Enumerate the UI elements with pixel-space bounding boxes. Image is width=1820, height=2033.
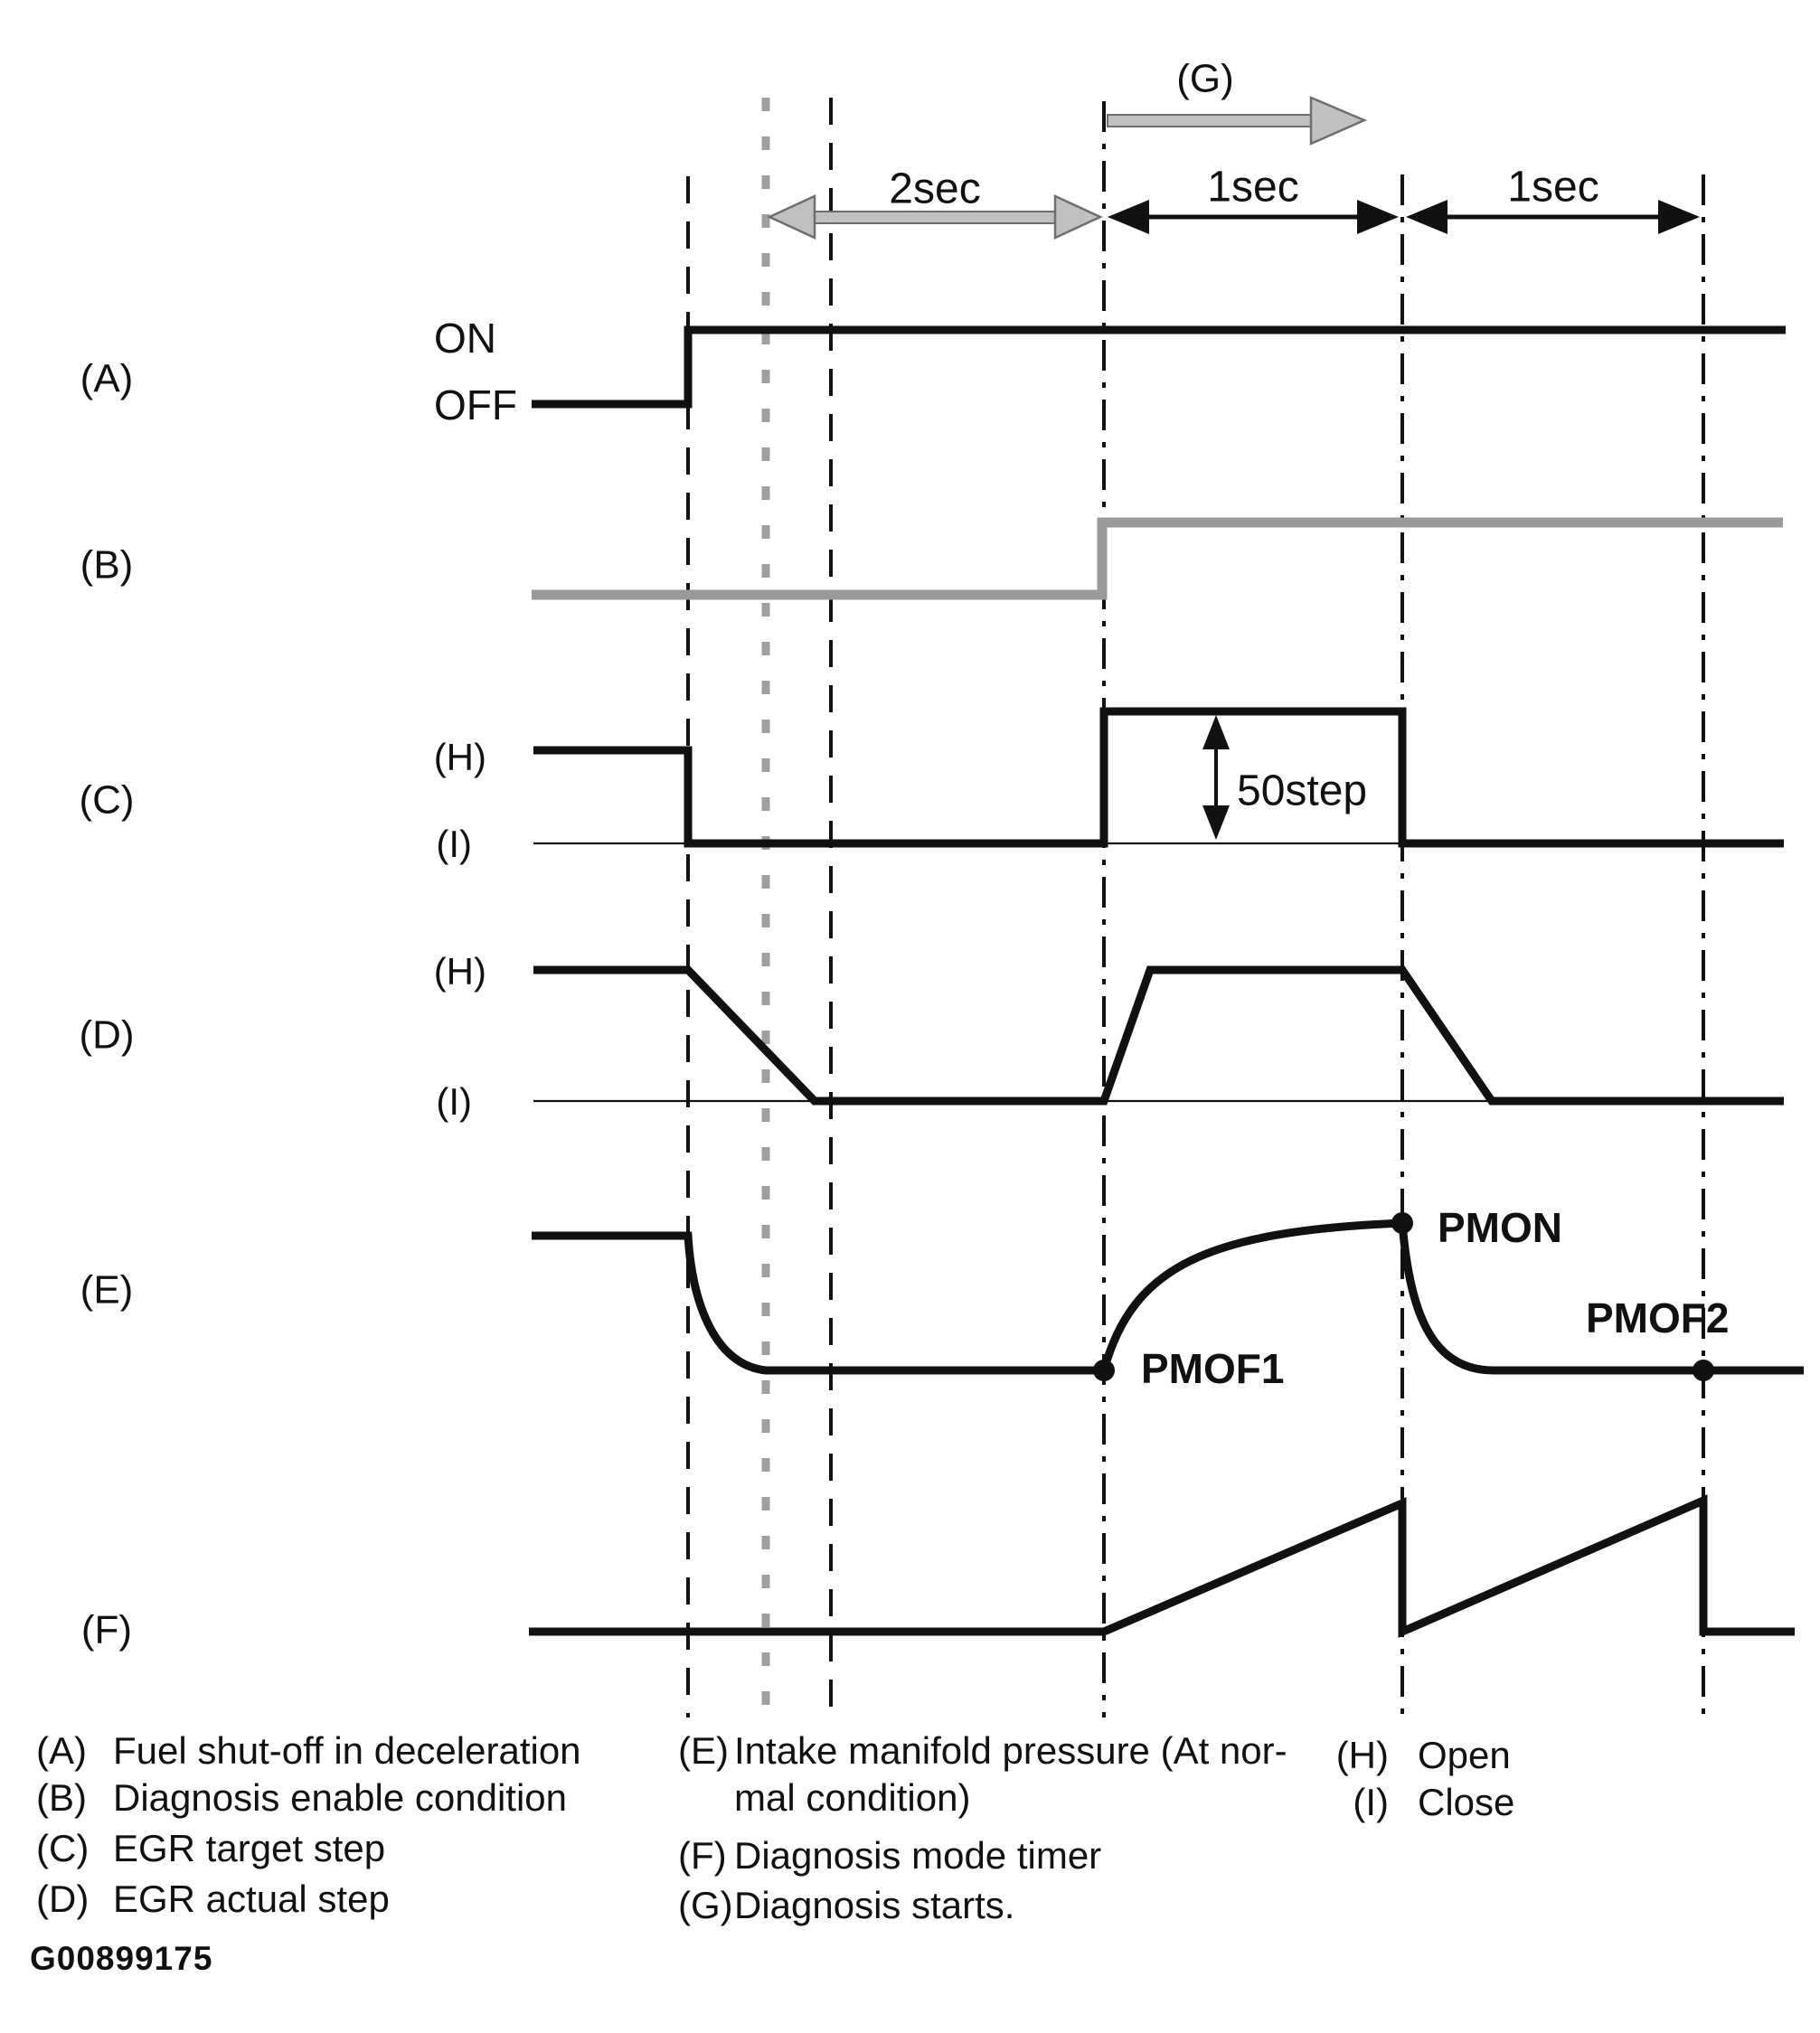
g-arrow-label: (G) bbox=[1176, 57, 1234, 101]
point-pmof1 bbox=[1093, 1360, 1115, 1381]
legend-key-c: (C) bbox=[36, 1825, 89, 1872]
legend-key-b: (B) bbox=[36, 1774, 87, 1821]
legend-key-a: (A) bbox=[36, 1727, 87, 1774]
label-on: ON bbox=[434, 315, 496, 362]
interval-arrow-1sec-first-right-head bbox=[1357, 200, 1399, 234]
level-label-c-low: (I) bbox=[436, 823, 472, 865]
label-50step: 50step bbox=[1237, 767, 1367, 815]
diagnosis-start-arrow-shaft bbox=[1108, 115, 1314, 127]
interval-arrow-1sec-first-left-head bbox=[1108, 200, 1149, 234]
diagnosis-start-arrow-head bbox=[1311, 98, 1364, 144]
waveform-diagnosis-timer bbox=[529, 1501, 1795, 1632]
legend-text-e: Intake manifold pressure (At nor- bbox=[734, 1727, 1287, 1774]
point-pmof2 bbox=[1693, 1360, 1714, 1381]
egr-diagnosis-timing-diagram: (G) 2sec 1sec 1sec (A) (B) (C) (D) (E) (… bbox=[0, 0, 1820, 2033]
row-label-d: (D) bbox=[79, 1013, 134, 1058]
step-height-arrow-bottom-head bbox=[1202, 805, 1230, 840]
label-pmof2: PMOF2 bbox=[1586, 1294, 1729, 1341]
interval-arrow-1sec-second-left-head bbox=[1406, 200, 1448, 234]
interval-arrow-2sec-right-head bbox=[1055, 196, 1100, 238]
row-label-b: (B) bbox=[80, 543, 134, 588]
point-pmon bbox=[1391, 1212, 1413, 1234]
legend-key-f: (F) bbox=[678, 1832, 727, 1879]
legend-key-e: (E) bbox=[678, 1727, 729, 1774]
row-label-a: (A) bbox=[80, 357, 134, 401]
legend-text-h: Open bbox=[1418, 1732, 1511, 1779]
waveform-diagnosis-enable bbox=[532, 522, 1783, 595]
waveform-egr-target-step bbox=[533, 711, 1784, 843]
legend-text-a: Fuel shut-off in deceleration bbox=[113, 1727, 581, 1774]
legend-key-h: (H) bbox=[1311, 1732, 1389, 1779]
legend-text-i: Close bbox=[1418, 1779, 1514, 1826]
interval-label-1sec-second: 1sec bbox=[1507, 164, 1598, 212]
interval-arrow-2sec-shaft bbox=[810, 212, 1060, 223]
legend-text-c: EGR target step bbox=[113, 1825, 385, 1872]
interval-label-1sec-first: 1sec bbox=[1207, 164, 1298, 212]
label-off: OFF bbox=[434, 381, 517, 428]
legend-text-d: EGR actual step bbox=[113, 1876, 390, 1923]
legend-key-i: (I) bbox=[1311, 1779, 1389, 1826]
interval-arrow-1sec-second-right-head bbox=[1658, 200, 1700, 234]
label-pmon: PMON bbox=[1438, 1204, 1562, 1251]
legend-key-d: (D) bbox=[36, 1876, 89, 1923]
diagnosis-start-arrow bbox=[1108, 98, 1364, 144]
legend-text-e2: mal condition) bbox=[734, 1774, 970, 1821]
label-pmof1: PMOF1 bbox=[1141, 1345, 1284, 1392]
interval-label-2sec: 2sec bbox=[889, 165, 980, 213]
row-label-e: (E) bbox=[80, 1268, 134, 1313]
row-label-f: (F) bbox=[81, 1608, 132, 1652]
figure-id: G00899175 bbox=[30, 1940, 212, 1978]
waveform-egr-actual-step bbox=[533, 970, 1784, 1101]
legend-text-f: Diagnosis mode timer bbox=[734, 1832, 1101, 1879]
legend-key-g: (G) bbox=[678, 1882, 733, 1929]
level-label-d-high: (H) bbox=[434, 950, 486, 993]
legend-text-g: Diagnosis starts. bbox=[734, 1882, 1014, 1929]
level-label-d-low: (I) bbox=[436, 1080, 472, 1123]
legend-text-b: Diagnosis enable condition bbox=[113, 1774, 567, 1821]
interval-arrow-2sec-left-head bbox=[769, 196, 815, 238]
level-label-c-high: (H) bbox=[434, 736, 486, 778]
row-label-c: (C) bbox=[79, 778, 134, 823]
step-height-arrow-top-head bbox=[1202, 715, 1230, 749]
waveform-fuel-shutoff bbox=[532, 330, 1786, 404]
step-height-arrow bbox=[1202, 715, 1230, 840]
